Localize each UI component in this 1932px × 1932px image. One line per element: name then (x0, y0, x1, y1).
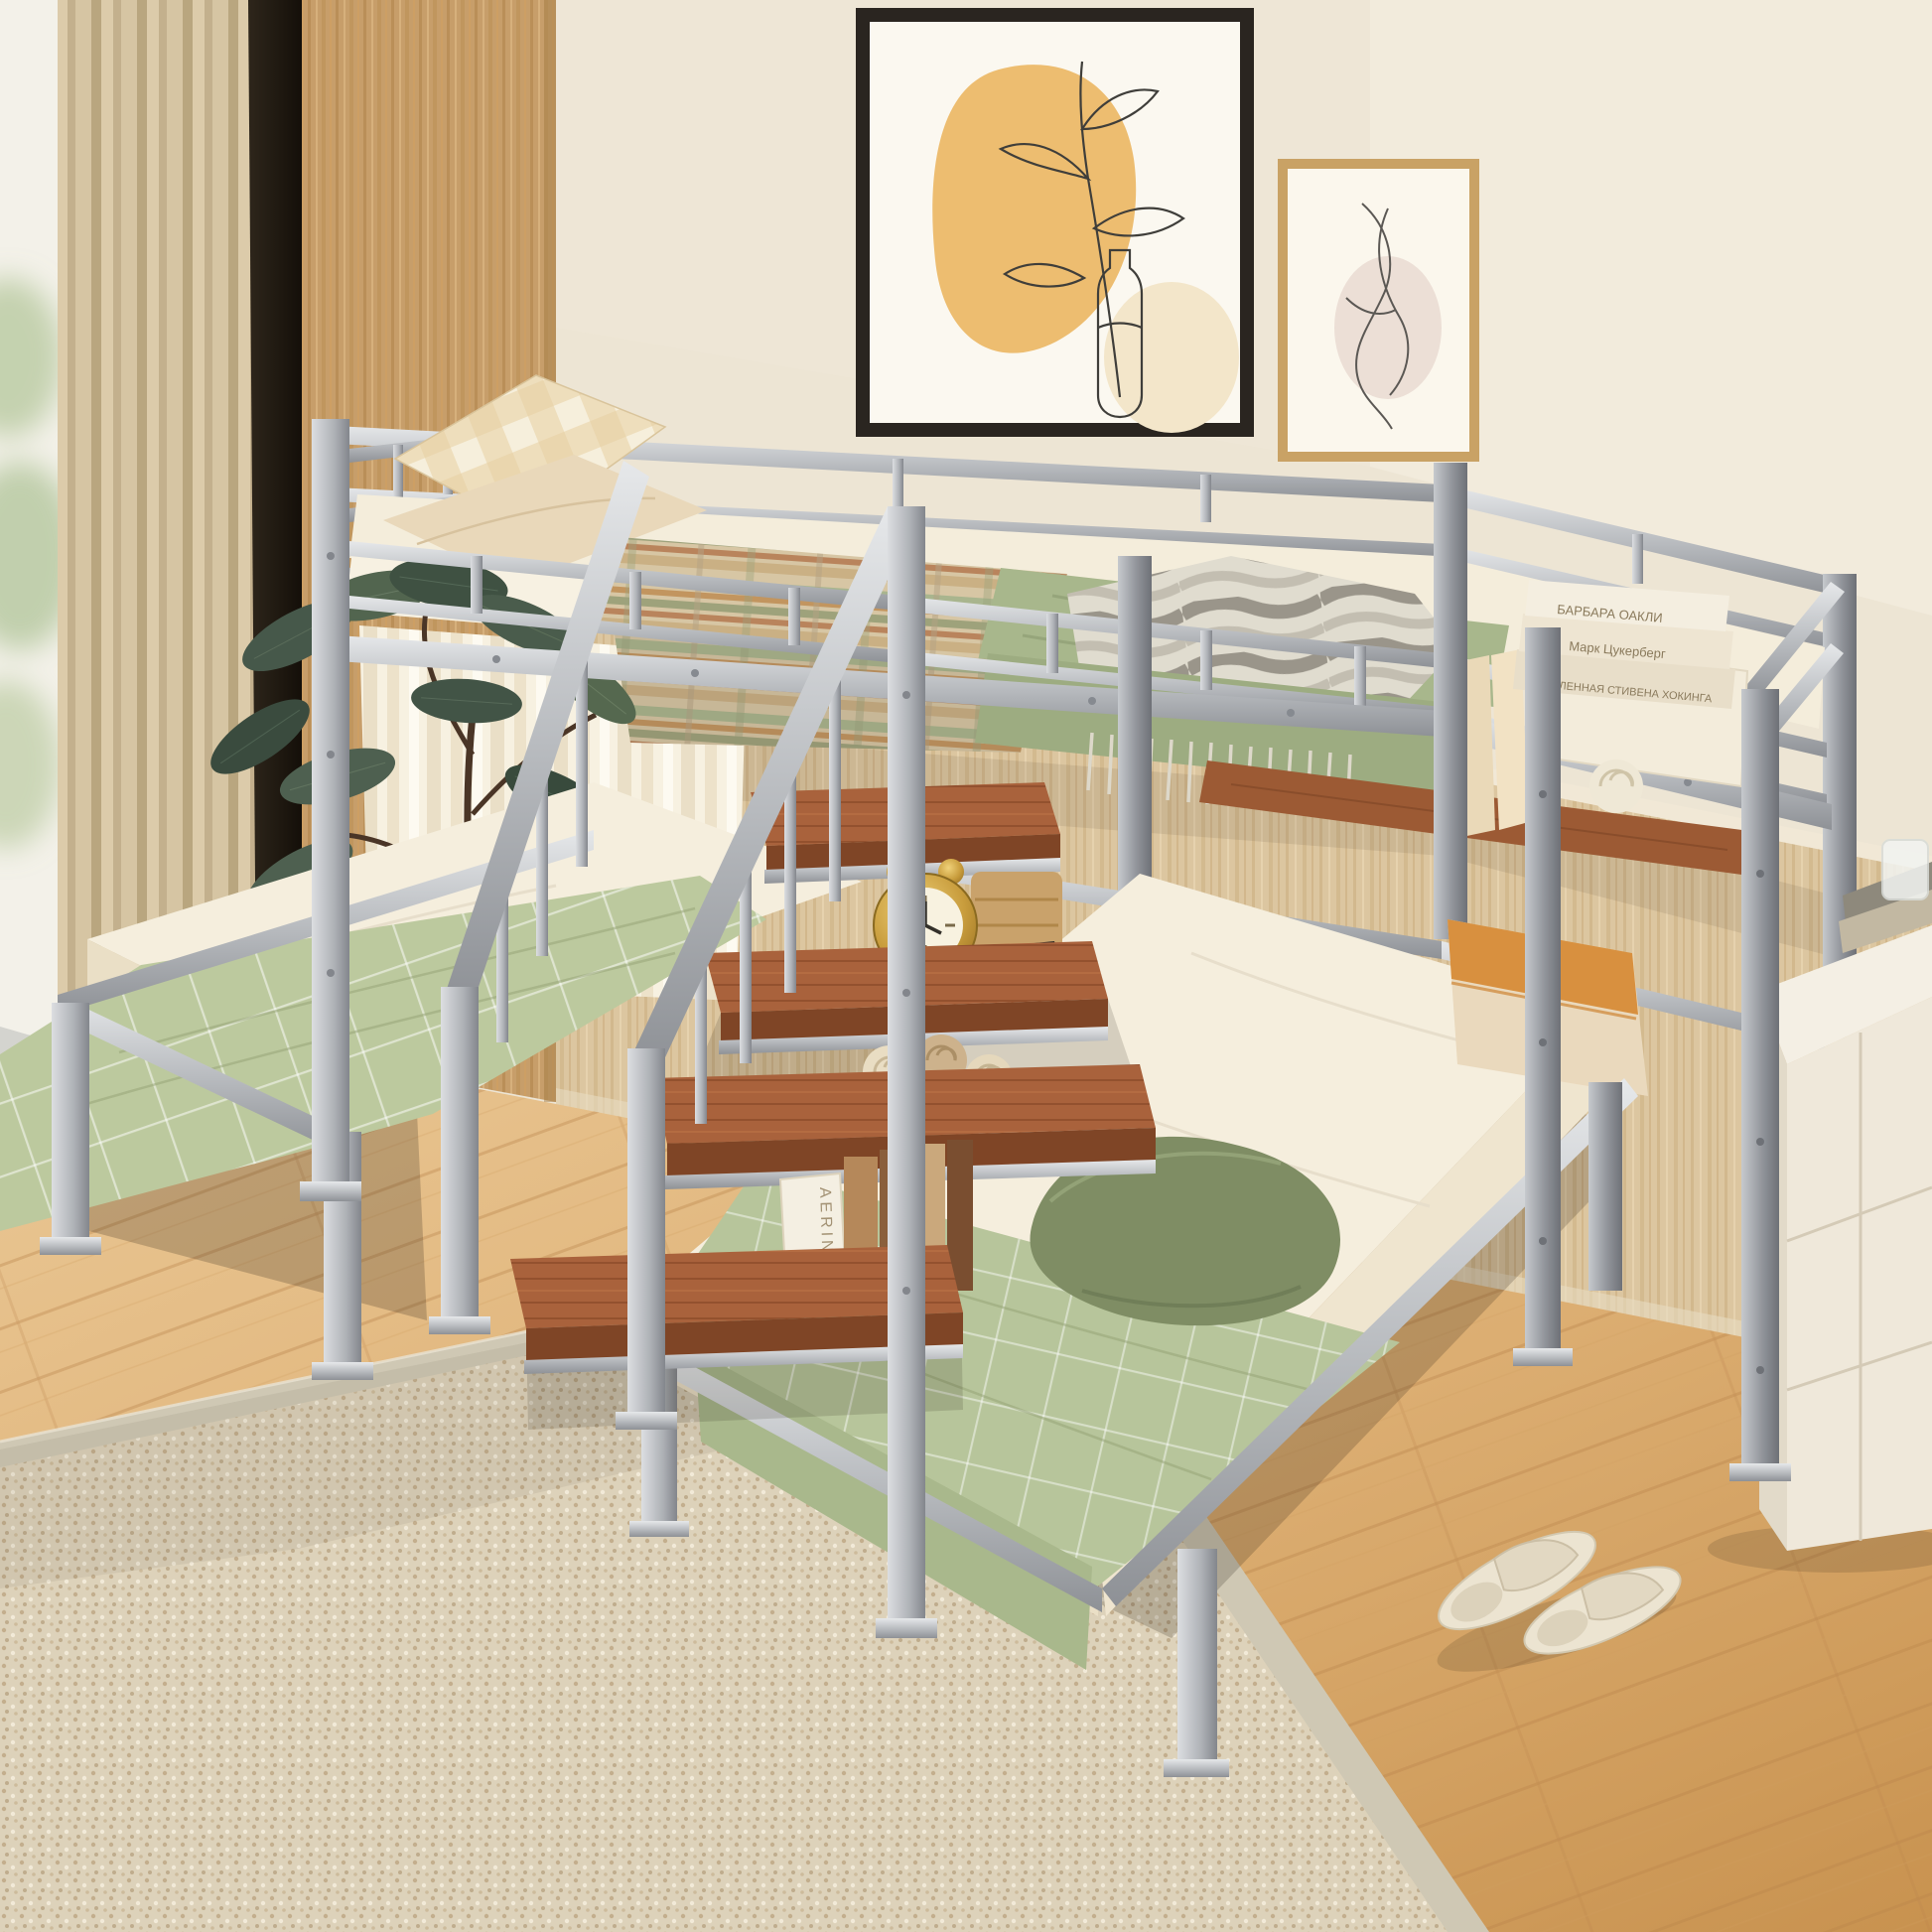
shelf-rolled-towel (1589, 759, 1643, 813)
book-spine-aerin: AERIN (816, 1187, 835, 1256)
art-cream-blob (1104, 282, 1239, 433)
framed-art-figure (1278, 159, 1479, 462)
framed-art-botanical (856, 8, 1254, 437)
loft-mid-back-post (1434, 463, 1467, 939)
glass-decor (1882, 840, 1928, 899)
bedroom-photo: БАРБАРА ОАКЛИ Марк Цукерберг ВСЕЛЕННАЯ С… (0, 0, 1932, 1932)
scene-canvas: БАРБАРА ОАКЛИ Марк Цукерберг ВСЕЛЕННАЯ С… (0, 0, 1932, 1932)
